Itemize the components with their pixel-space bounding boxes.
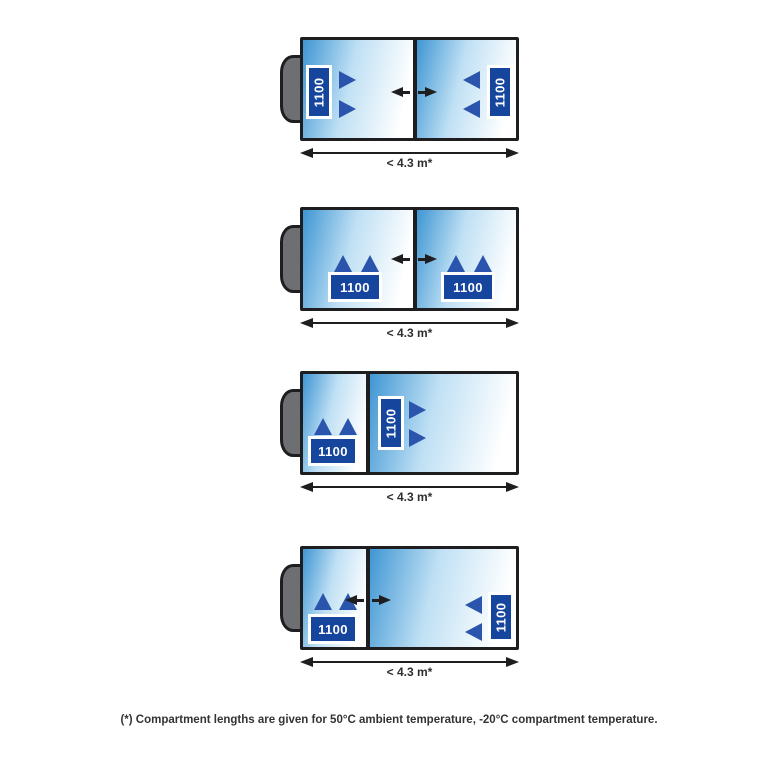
evaporator-unit-box: 1100 xyxy=(328,272,382,302)
airflow-left-icon xyxy=(465,596,482,614)
airflow-up-icon xyxy=(339,418,357,435)
dimension-label: < 4.3 m* xyxy=(300,326,519,340)
evaporator-unit-box: 1100 xyxy=(487,65,513,119)
movable-bulkhead-arrows-icon xyxy=(345,595,391,605)
airflow-up-icon xyxy=(334,255,352,272)
truck-body: 1100 1100 xyxy=(300,371,519,475)
airflow-left-icon xyxy=(463,100,480,118)
diagram-config-4: 1100 1100 < 4.3 m* xyxy=(278,546,523,682)
airflow-up-icon xyxy=(314,418,332,435)
movable-bulkhead-arrows-icon xyxy=(391,254,437,264)
truck-body: 1100 1100 xyxy=(300,546,519,650)
bulkhead-divider xyxy=(366,374,370,472)
unit-capacity-label: 1100 xyxy=(340,280,370,295)
movable-bulkhead-arrows-icon xyxy=(391,87,437,97)
airflow-right-icon xyxy=(409,401,426,419)
footnote-text: (*) Compartment lengths are given for 50… xyxy=(0,714,778,726)
airflow-left-icon xyxy=(463,71,480,89)
airflow-up-icon xyxy=(474,255,492,272)
truck-body: 1100 1100 xyxy=(300,207,519,311)
unit-capacity-label: 1100 xyxy=(312,77,327,107)
unit-capacity-label: 1100 xyxy=(494,602,509,632)
diagram-config-2: 1100 1100 < 4.3 m* xyxy=(278,207,523,343)
airflow-right-icon xyxy=(409,429,426,447)
bulkhead-adjust-right-icon xyxy=(418,87,437,97)
unit-capacity-label: 1100 xyxy=(318,444,348,459)
evaporator-unit-box: 1100 xyxy=(306,65,332,119)
evaporator-unit-box: 1100 xyxy=(378,396,404,450)
evaporator-unit-box: 1100 xyxy=(441,272,495,302)
diagram-config-3: 1100 1100 < 4.3 m* xyxy=(278,371,523,507)
unit-capacity-label: 1100 xyxy=(318,622,348,637)
page: 1100 1100 < 4.3 m* xyxy=(0,0,778,778)
diagram-config-1: 1100 1100 < 4.3 m* xyxy=(278,37,523,173)
unit-capacity-label: 1100 xyxy=(493,77,508,107)
dimension-label: < 4.3 m* xyxy=(300,490,519,504)
unit-capacity-label: 1100 xyxy=(384,408,399,438)
bulkhead-adjust-right-icon xyxy=(418,254,437,264)
airflow-up-icon xyxy=(447,255,465,272)
evaporator-unit-box: 1100 xyxy=(488,592,514,642)
dimension-label: < 4.3 m* xyxy=(300,665,519,679)
airflow-up-icon xyxy=(314,593,332,610)
airflow-up-icon xyxy=(361,255,379,272)
bulkhead-adjust-right-icon xyxy=(372,595,391,605)
airflow-left-icon xyxy=(465,623,482,641)
bulkhead-adjust-left-icon xyxy=(345,595,364,605)
airflow-right-icon xyxy=(339,71,356,89)
bulkhead-adjust-left-icon xyxy=(391,254,410,264)
bulkhead-adjust-left-icon xyxy=(391,87,410,97)
airflow-right-icon xyxy=(339,100,356,118)
evaporator-unit-box: 1100 xyxy=(308,436,358,466)
dimension-label: < 4.3 m* xyxy=(300,156,519,170)
evaporator-unit-box: 1100 xyxy=(308,614,358,644)
truck-body: 1100 1100 xyxy=(300,37,519,141)
unit-capacity-label: 1100 xyxy=(453,280,483,295)
